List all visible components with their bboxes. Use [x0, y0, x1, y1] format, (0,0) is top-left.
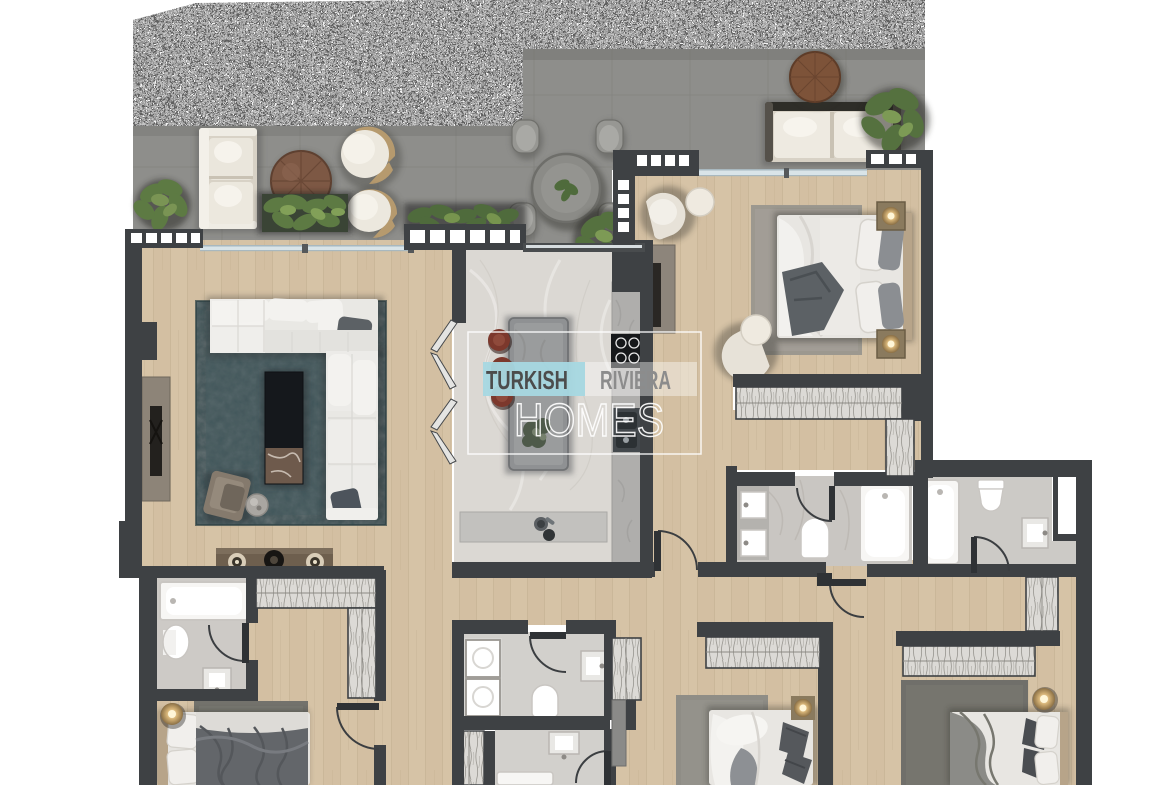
svg-text:TURKISH: TURKISH: [486, 365, 568, 395]
svg-text:HOMES: HOMES: [514, 394, 664, 446]
svg-text:RIVIERA: RIVIERA: [600, 365, 671, 395]
